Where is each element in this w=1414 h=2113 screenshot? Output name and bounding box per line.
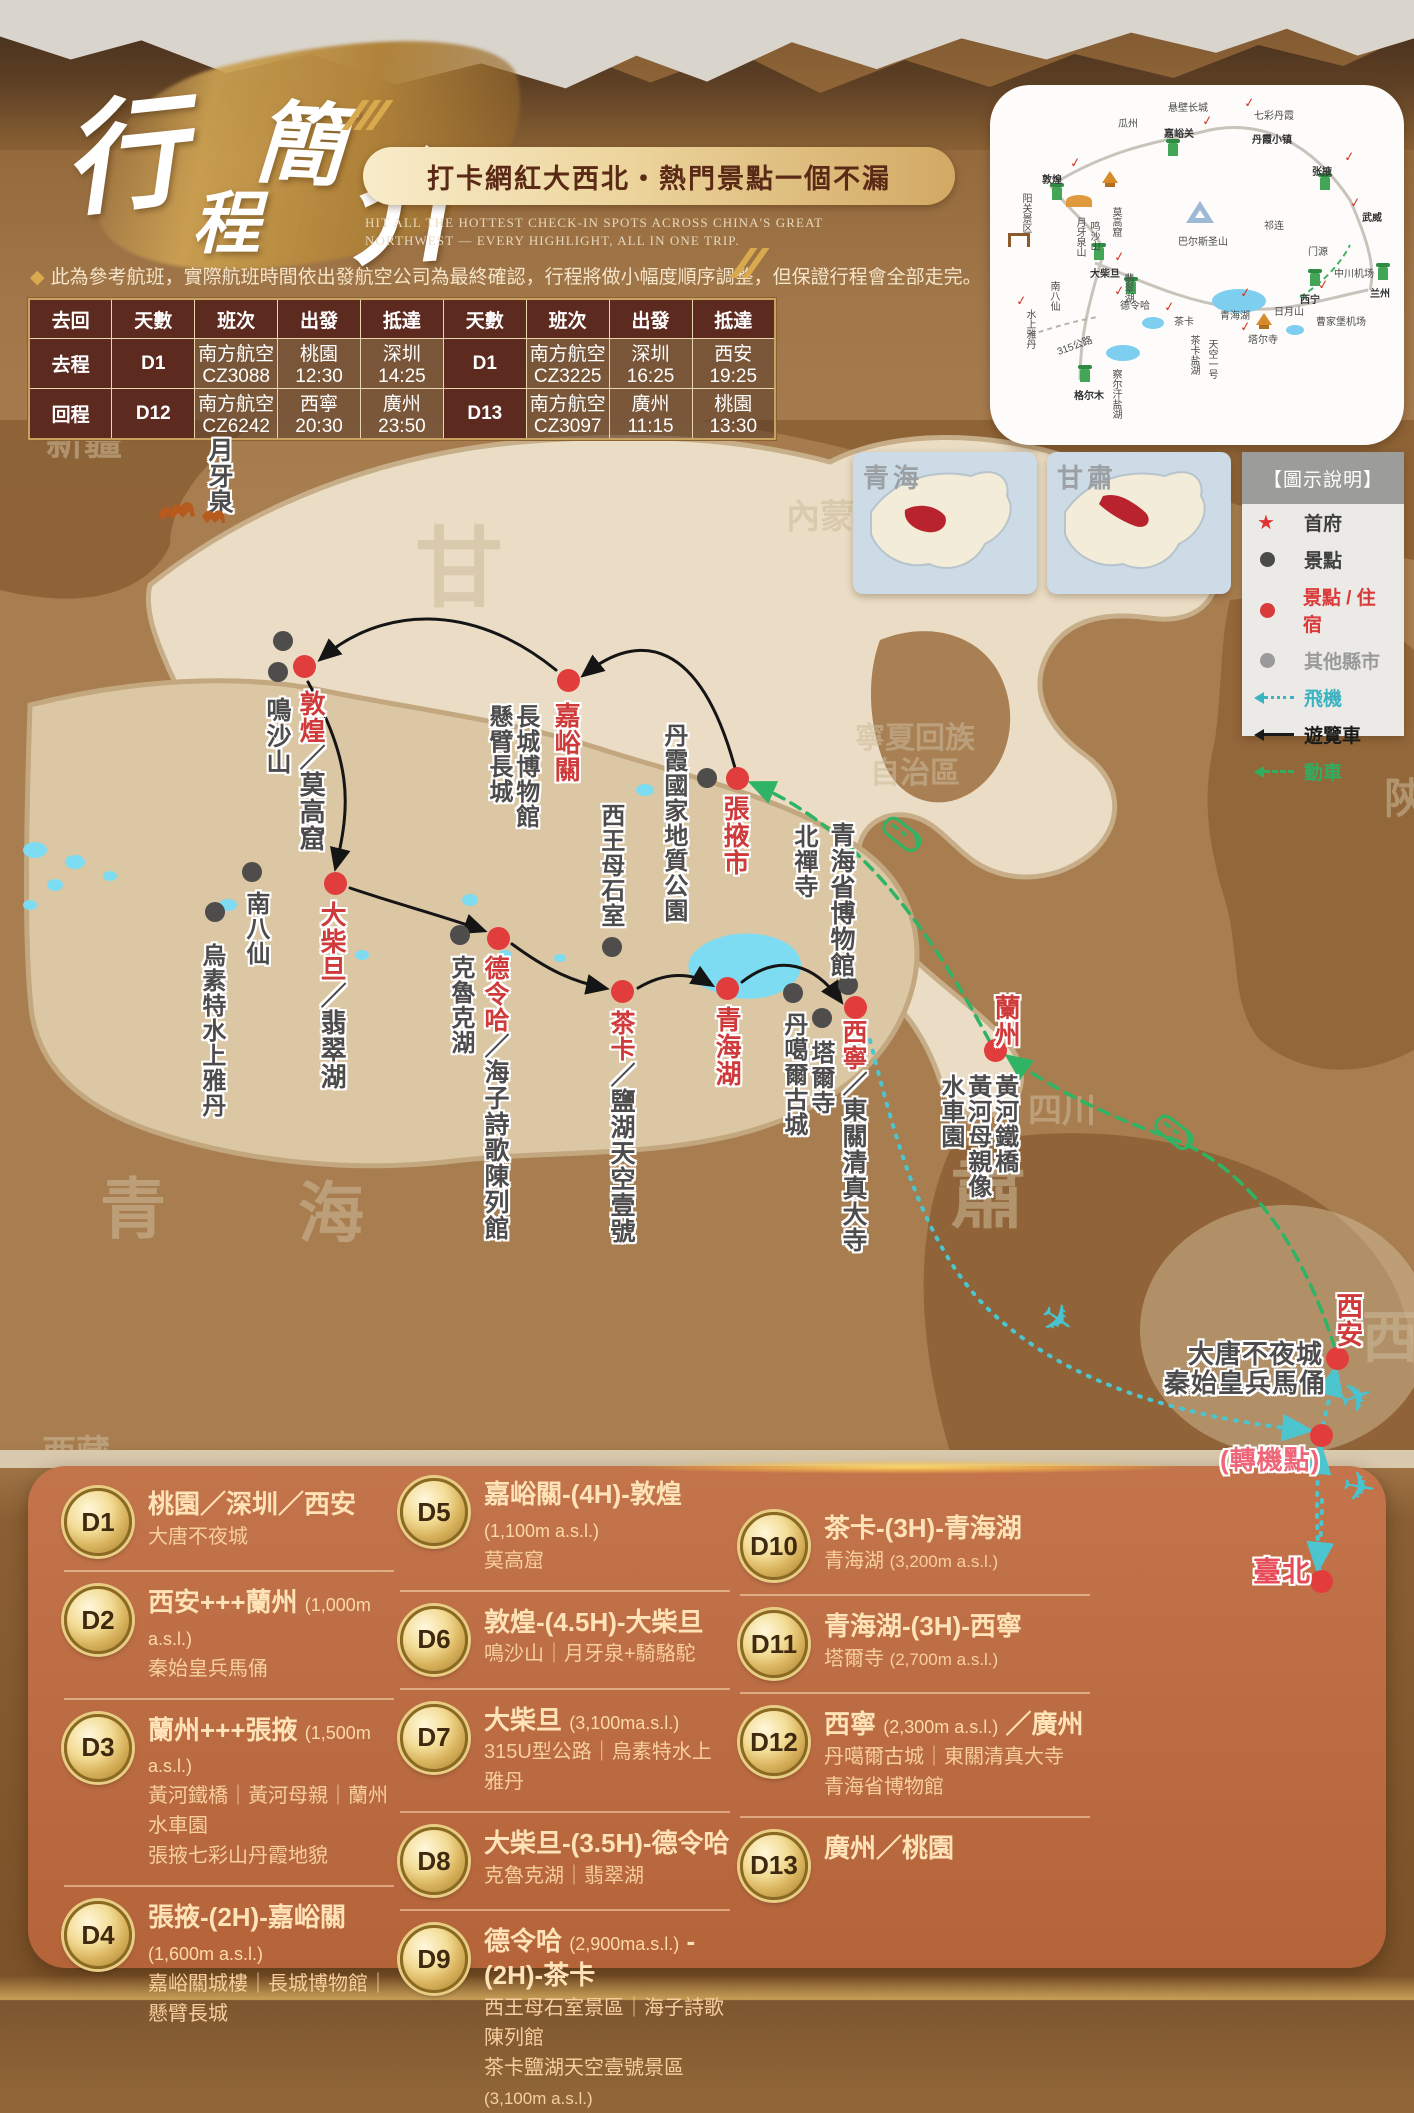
minimap-label: 武威: [1362, 209, 1382, 224]
map-label-part: ／海子詩歌陳列館: [481, 1033, 509, 1241]
itinerary-entry: D1桃園／深圳／西安大唐不夜城: [64, 1488, 394, 1556]
flight-cell: 南方航空CZ6242: [195, 389, 278, 440]
diamond-icon: ◆: [30, 267, 45, 288]
legend-item: ★首府: [1242, 504, 1404, 541]
entry-text: 德令哈 (2,900ma.s.l.) -(2H)-茶卡西王母石室景區｜海子詩歌陳…: [484, 1925, 730, 2113]
itinerary-entry: D3蘭州+++張掖 (1,500m a.s.l.)黃河鐵橋｜黃河母親｜蘭州水車園…: [64, 1714, 394, 1872]
entry-title-part: 張掖-(2H)-嘉峪關: [148, 1902, 346, 1932]
map-label-part: (轉機點): [1220, 1445, 1320, 1475]
map-stop-dot-red: [1310, 1570, 1333, 1593]
tower-icon: [1320, 177, 1330, 190]
entry-detail-part: 克魯克湖｜翡翠湖: [484, 1865, 644, 1887]
flight-cell: D13: [443, 389, 526, 440]
minimap-label: 塔尔寺: [1248, 331, 1278, 346]
minimap-label: 嘉峪关: [1164, 125, 1194, 140]
entry-title: 德令哈 (2,900ma.s.l.) -(2H)-茶卡: [484, 1925, 730, 1993]
itinerary-entry: D6敦煌-(4.5H)-大柴旦鳴沙山｜月牙泉+騎駱駝: [400, 1606, 730, 1674]
flight-cell: 南方航空CZ3088: [195, 339, 278, 389]
flight-cell: 廣州11:15: [609, 389, 692, 440]
map-stop-label: 青海省博物館: [827, 822, 855, 978]
map-watermark: 西: [1362, 1306, 1414, 1370]
map-legend: 【圖示說明】 ★首府景點景點 / 住宿其他縣市飛機遊覽車動車: [1242, 452, 1404, 736]
map-stop-dot-dark: [268, 662, 288, 682]
map-label-part: 塔爾寺: [807, 1040, 834, 1115]
entry-text: 敦煌-(4.5H)-大柴旦鳴沙山｜月牙泉+騎駱駝: [484, 1606, 704, 1670]
entry-divider: [400, 1811, 730, 1813]
entry-detail-part: (3,100m a.s.l.): [484, 2089, 593, 2108]
flight-cell: 西安19:25: [692, 339, 775, 389]
pagoda-icon: [1102, 171, 1118, 183]
map-stop-label: 大柴旦／翡翠湖: [317, 901, 346, 1090]
map-stop-dot-dark: [205, 902, 225, 922]
map-label-part: 秦始皇兵馬俑: [1164, 1368, 1326, 1398]
check-icon: ✓: [1317, 276, 1330, 293]
minimap-label: 丹霞小镇: [1252, 131, 1292, 146]
map-stop-dot-dark: [242, 862, 262, 882]
day-badge: D6: [400, 1606, 468, 1674]
legend-item-label: 其他縣市: [1304, 647, 1380, 674]
legend-item: 景點 / 住宿: [1242, 578, 1404, 642]
map-label-part: ／東關清真大寺: [839, 1071, 867, 1253]
entry-detail-line: 嘉峪關城樓｜長城博物館｜懸臂長城: [148, 1969, 394, 2029]
map-watermark: 甘: [415, 518, 503, 619]
pagoda-icon: [1256, 313, 1272, 325]
map-stop-dot-red: [557, 669, 580, 692]
check-icon: ✓: [1163, 298, 1176, 315]
minimap-label: 察尔汗盐湖: [1108, 369, 1123, 419]
minimap-label: 张掖: [1312, 163, 1332, 178]
minimap-label: 中川机场: [1334, 265, 1374, 280]
flight-col-header: 去回: [29, 299, 112, 339]
legend-item: 遊覽車: [1242, 716, 1404, 753]
check-icon: ✓: [1239, 318, 1252, 335]
map-label-part: 南八仙: [242, 891, 269, 966]
check-icon: ✓: [1113, 248, 1126, 265]
map-label-part: 德令哈: [481, 955, 509, 1033]
itinerary-entry: D4張掖-(2H)-嘉峪關 (1,600m a.s.l.)嘉峪關城樓｜長城博物館…: [64, 1901, 394, 2029]
map-stop-label: 烏素特水上雅丹: [197, 943, 224, 1118]
entry-detail-line: 青海省博物館: [824, 1772, 1084, 1802]
flight-col-header: 天數: [443, 299, 526, 339]
day-badge: D9: [400, 1925, 468, 1993]
entry-title: 廣州／桃園: [824, 1832, 954, 1866]
day-badge: D11: [740, 1610, 808, 1678]
arrow-icon: [1254, 729, 1294, 741]
legend-title: 【圖示說明】: [1242, 452, 1404, 504]
legend-item-label: 動車: [1304, 758, 1342, 785]
entry-text: 青海湖-(3H)-西寧塔爾寺 (2,700m a.s.l.): [824, 1610, 1022, 1674]
entry-divider: [64, 1570, 394, 1572]
flight-cell: 西寧20:30: [278, 389, 361, 440]
entry-title-part: (1,100m a.s.l.): [484, 1521, 599, 1541]
legend-item-label: 遊覽車: [1304, 721, 1361, 748]
map-label-part: 黃河鐵橋 黃河母親像 水車園: [937, 1074, 1018, 1199]
minimap-label: 日月山: [1274, 303, 1304, 318]
check-icon: ✓: [1015, 292, 1028, 309]
map-stop-label: 蘭州: [991, 994, 1020, 1048]
entry-title: 敦煌-(4.5H)-大柴旦: [484, 1606, 704, 1640]
flight-col-header: 天數: [112, 299, 195, 339]
entry-title: 桃園／深圳／西安: [148, 1488, 356, 1522]
map-stop-label: 嘉峪關: [551, 702, 580, 783]
entry-title: 青海湖-(3H)-西寧: [824, 1610, 1022, 1644]
entry-detail-part: 鳴沙山｜月牙泉+騎駱駝: [484, 1643, 696, 1665]
entry-detail-part: 嘉峪關城樓｜長城博物館｜懸臂長城: [148, 1973, 388, 2025]
map-stop-label: 張掖市: [720, 795, 749, 876]
map-label-part: 大唐不夜城: [1188, 1339, 1323, 1369]
tower-icon: [1052, 187, 1062, 200]
lake-icon: [1142, 317, 1164, 329]
map-watermark: 寧夏回族 自治區: [855, 722, 975, 791]
entry-detail-part: 莫高窟: [484, 1550, 544, 1572]
map-stop-dot-red: [293, 655, 316, 678]
entry-title-part: (3,100ma.s.l.): [569, 1713, 679, 1733]
map-stop-label: (轉機點): [1220, 1446, 1320, 1475]
entry-title-part: 廣州／桃園: [824, 1833, 954, 1863]
flight-table: 去回天數班次出發抵達天數班次出發抵達 去程D1南方航空CZ3088桃園12:30…: [28, 298, 776, 440]
map-stop-dot-red: [726, 767, 749, 790]
check-icon: ✓: [1239, 284, 1252, 301]
check-icon: ✓: [1349, 194, 1362, 211]
illustrated-route-minimap: 敦煌瓜州悬壁长城嘉峪关七彩丹霞丹霞小镇张掖武威兰州中川机场西宁曹家堡机场塔尔寺青…: [990, 85, 1404, 445]
entry-text: 西寧 (2,300m a.s.l.) ／廣州丹噶爾古城｜東關清真大寺青海省博物館: [824, 1708, 1084, 1802]
flight-col-header: 抵達: [692, 299, 775, 339]
itinerary-entry: D12西寧 (2,300m a.s.l.) ／廣州丹噶爾古城｜東關清真大寺青海省…: [740, 1708, 1090, 1802]
minimap-label: 门源: [1308, 243, 1328, 258]
gold-slashes-icon: [740, 248, 764, 283]
map-stop-label: 黃河鐵橋 黃河母親像 水車園: [936, 1074, 1017, 1199]
flight-cell: 南方航空CZ3225: [526, 339, 609, 389]
entry-detail-line: 塔爾寺 (2,700m a.s.l.): [824, 1644, 1022, 1674]
map-stop-label: 長城博物館 懸臂長城: [484, 704, 538, 829]
legend-item: 其他縣市: [1242, 642, 1404, 679]
flight-cell: 桃園12:30: [278, 339, 361, 389]
entry-divider: [740, 1692, 1090, 1694]
entry-divider: [64, 1885, 394, 1887]
entry-detail-part: 青海湖: [824, 1550, 890, 1572]
map-stop-dot-dark: [450, 925, 470, 945]
minimap-label: 月牙泉山: [1072, 217, 1087, 257]
map-stop-dot-red: [324, 872, 347, 895]
minimap-label: 兰州: [1370, 285, 1390, 300]
map-stop-label: 西寧／東關清真大寺: [839, 1019, 867, 1253]
tower-icon: [1378, 267, 1388, 280]
map-stop-label: 丹噶爾古城: [779, 1012, 806, 1137]
itinerary-entry: D10茶卡-(3H)-青海湖青海湖 (3,200m a.s.l.): [740, 1512, 1090, 1580]
entry-detail-part: 塔爾寺: [824, 1648, 890, 1670]
entry-detail-line: 丹噶爾古城｜東關清真大寺: [824, 1742, 1084, 1772]
dot-icon: [1254, 552, 1294, 567]
map-label-part: 西安: [1332, 1292, 1362, 1348]
entry-detail-line: 克魯克湖｜翡翠湖: [484, 1861, 730, 1891]
map-stop-label: 西王母石室: [596, 803, 623, 928]
entry-title: 嘉峪關-(4H)-敦煌 (1,100m a.s.l.): [484, 1478, 730, 1546]
entry-title-part: ／廣州: [998, 1709, 1083, 1739]
entry-title: 大柴旦 (3,100ma.s.l.): [484, 1704, 730, 1738]
flight-cell: 廣州23:50: [361, 389, 444, 440]
entry-title-part: 敦煌-(4.5H)-大柴旦: [484, 1607, 704, 1637]
minimap-label: 瓜州: [1118, 115, 1138, 130]
minimap-label: 阳关景区: [1018, 193, 1033, 233]
lake-icon: [1286, 325, 1304, 335]
day-badge: D7: [400, 1704, 468, 1772]
map-label-part: 烏素特水上雅丹: [198, 943, 225, 1118]
check-icon: ✓: [1113, 282, 1126, 299]
entry-text: 張掖-(2H)-嘉峪關 (1,600m a.s.l.)嘉峪關城樓｜長城博物館｜懸…: [148, 1901, 394, 2029]
dot-icon: [1254, 653, 1294, 668]
itinerary-entry: D7大柴旦 (3,100ma.s.l.)315U型公路｜烏素特水上雅丹: [400, 1704, 730, 1798]
camel-caravan-icon: [150, 485, 235, 532]
map-stop-label: 西安: [1332, 1292, 1362, 1348]
day-badge: D13: [740, 1832, 808, 1900]
minimap-label: 天空一号: [1204, 339, 1219, 379]
map-watermark: 海: [298, 1176, 364, 1252]
star-icon: ★: [1254, 510, 1294, 535]
map-stop-label: 鳴沙山: [263, 697, 291, 775]
map-label-part: 克魯克湖: [447, 955, 474, 1055]
entry-text: 大柴旦-(3.5H)-德令哈克魯克湖｜翡翠湖: [484, 1827, 730, 1891]
locator-map-qinghai: 青海: [853, 452, 1037, 594]
day-badge: D3: [64, 1714, 132, 1782]
entry-detail-line: 青海湖 (3,200m a.s.l.): [824, 1546, 1022, 1576]
arrow-icon: [1254, 692, 1294, 704]
entry-title: 張掖-(2H)-嘉峪關 (1,600m a.s.l.): [148, 1901, 394, 1969]
map-stop-label: 塔爾寺: [806, 1040, 833, 1115]
map-watermark: 青: [100, 1172, 166, 1248]
minimap-label: 茶卡: [1174, 313, 1194, 328]
plane-icon: ✈: [1339, 1465, 1379, 1510]
entry-detail-part: 青海省博物館: [824, 1776, 944, 1798]
entry-detail-part: 茶卡鹽湖天空壹號景區: [484, 2057, 684, 2079]
entry-title: 西寧 (2,300m a.s.l.) ／廣州: [824, 1708, 1084, 1742]
entry-title-part: 青海湖-(3H)-西寧: [824, 1611, 1022, 1641]
tagline-english: HIT ALL THE HOTTEST CHECK-IN SPOTS ACROS…: [365, 214, 823, 249]
check-icon: ✓: [1201, 112, 1214, 129]
day-badge: D1: [64, 1488, 132, 1556]
legend-item: 動車: [1242, 753, 1404, 790]
minimap-label: 茶卡盐湖: [1186, 335, 1201, 375]
minimap-label: 七彩丹霞: [1254, 107, 1294, 122]
check-icon: ✓: [1069, 154, 1082, 171]
flight-col-header: 班次: [526, 299, 609, 339]
map-label-part: 西王母石室: [597, 803, 624, 928]
entry-text: 蘭州+++張掖 (1,500m a.s.l.)黃河鐵橋｜黃河母親｜蘭州水車園張掖…: [148, 1714, 394, 1872]
mtn-icon: [1186, 201, 1214, 223]
map-stop-dot-dark: [812, 1008, 832, 1028]
entry-text: 茶卡-(3H)-青海湖青海湖 (3,200m a.s.l.): [824, 1512, 1022, 1576]
map-stop-dot-red: [1326, 1347, 1349, 1370]
day-badge: D12: [740, 1708, 808, 1776]
minimap-label: 南八仙: [1046, 281, 1061, 311]
itinerary-entry: D5嘉峪關-(4H)-敦煌 (1,100m a.s.l.)莫高窟: [400, 1478, 730, 1576]
map-label-part: ／鹽湖天空壹號: [607, 1062, 635, 1244]
map-stop-label: 青海湖: [712, 1006, 741, 1087]
entry-detail-line: 大唐不夜城: [148, 1522, 356, 1552]
entry-divider: [400, 1909, 730, 1911]
map-stop-label: 敦煌／莫高窟: [296, 690, 325, 852]
entry-title-part: 西寧: [824, 1709, 883, 1739]
map-stop-label: 秦始皇兵馬俑: [1164, 1369, 1326, 1398]
entry-detail-part: (3,200m a.s.l.): [890, 1552, 999, 1571]
entry-divider: [740, 1594, 1090, 1596]
map-watermark: 四川: [1028, 1092, 1096, 1131]
entry-title-part: 嘉峪關-(4H)-敦煌: [484, 1479, 682, 1509]
flight-cell: D1: [112, 339, 195, 389]
entry-detail-part: 秦始皇兵馬俑: [148, 1658, 268, 1680]
entry-detail-line: 莫高窟: [484, 1546, 730, 1576]
map-label-part: 敦煌: [296, 690, 326, 744]
minimap-label: 莫高窟: [1108, 207, 1123, 237]
minimap-label: 祁连: [1264, 217, 1284, 232]
entry-text: 大柴旦 (3,100ma.s.l.)315U型公路｜烏素特水上雅丹: [484, 1704, 730, 1798]
map-stop-label: 北禪寺: [789, 824, 816, 899]
itinerary-entry: D8大柴旦-(3.5H)-德令哈克魯克湖｜翡翠湖: [400, 1827, 730, 1895]
map-stop-dot-red: [611, 980, 634, 1003]
flight-cell: 深圳14:25: [361, 339, 444, 389]
minimap-label: 水上雅丹: [1022, 309, 1037, 349]
itinerary-card: D1桃園／深圳／西安大唐不夜城D2西安+++蘭州 (1,000m a.s.l.)…: [28, 1466, 1386, 1968]
tagline-badge: 打卡網紅大西北・熱門景點一個不漏: [363, 147, 955, 205]
locator-label: 青海: [863, 458, 923, 495]
flight-cell: 回程: [29, 389, 112, 440]
map-stop-dot-red: [487, 927, 510, 950]
map-label-part: 丹霞國家地質公園: [660, 723, 687, 923]
flight-cell: D1: [443, 339, 526, 389]
day-badge: D5: [400, 1478, 468, 1546]
flight-cell: 南方航空CZ3097: [526, 389, 609, 440]
dune-icon: [1066, 195, 1092, 207]
entry-detail-part: (2,700m a.s.l.): [890, 1650, 999, 1669]
map-label-part: ／翡翠湖: [317, 982, 347, 1090]
legend-item-label: 景點: [1304, 546, 1342, 573]
flight-cell: D12: [112, 389, 195, 440]
lake-icon: [1106, 345, 1140, 361]
map-label-part: 丹噶爾古城: [780, 1012, 807, 1137]
flight-cell: 深圳16:25: [609, 339, 692, 389]
flight-col-header: 出發: [609, 299, 692, 339]
minimap-label: 鸣沙山: [1086, 221, 1101, 251]
entry-detail-part: 黃河鐵橋｜黃河母親｜蘭州水車園: [148, 1785, 388, 1837]
map-stop-dot-red: [716, 977, 739, 1000]
entry-detail-line: 西王母石室景區｜海子詩歌陳列館: [484, 1993, 730, 2053]
entry-title-part: 蘭州+++張掖: [148, 1715, 305, 1745]
arrow-icon: [1254, 766, 1294, 778]
minimap-label: 悬壁长城: [1168, 99, 1208, 114]
entry-title-part: (1,600m a.s.l.): [148, 1944, 263, 1964]
page-title-char: 簡: [252, 70, 349, 205]
day-badge: D2: [64, 1586, 132, 1654]
map-label-part: 大柴旦: [317, 901, 347, 982]
tower-icon: [1168, 143, 1178, 156]
entry-text: 西安+++蘭州 (1,000m a.s.l.)秦始皇兵馬俑: [148, 1586, 394, 1684]
map-stop-dot-dark: [273, 631, 293, 651]
map-stop-label: 南八仙: [241, 891, 268, 966]
entry-title-part: 茶卡-(3H)-青海湖: [824, 1513, 1022, 1543]
map-stop-label: 茶卡／鹽湖天空壹號: [607, 1010, 635, 1244]
minimap-label: 格尔木: [1074, 387, 1104, 402]
locator-map-gansu: 甘肅: [1047, 452, 1231, 594]
entry-detail-part: 張掖七彩山丹霞地貌: [148, 1845, 328, 1867]
day-badge: D10: [740, 1512, 808, 1580]
map-label-part: 臺北: [1253, 1556, 1311, 1587]
check-icon: ✓: [1243, 94, 1256, 111]
entry-detail-part: 丹噶爾古城｜東關清真大寺: [824, 1746, 1064, 1768]
page-title-char: 程: [192, 168, 260, 267]
map-label-part: ／莫高窟: [296, 744, 326, 852]
map-stop-label: 克魯克湖: [446, 955, 473, 1055]
entry-title: 蘭州+++張掖 (1,500m a.s.l.): [148, 1714, 394, 1782]
minimap-label: 大柴旦: [1090, 265, 1120, 280]
entry-divider: [400, 1590, 730, 1592]
entry-title: 大柴旦-(3.5H)-德令哈: [484, 1827, 730, 1861]
entry-detail-part: 315U型公路｜烏素特水上雅丹: [484, 1741, 712, 1793]
entry-detail-line: 鳴沙山｜月牙泉+騎駱駝: [484, 1639, 704, 1669]
flight-cell: 桃園13:30: [692, 389, 775, 440]
map-stop-dot-dark: [838, 975, 858, 995]
itinerary-entry: D9德令哈 (2,900ma.s.l.) -(2H)-茶卡西王母石室景區｜海子詩…: [400, 1925, 730, 2113]
entry-detail-part: 大唐不夜城: [148, 1526, 248, 1548]
map-stop-label: 德令哈／海子詩歌陳列館: [481, 955, 509, 1241]
entry-title-part: (2,900ma.s.l.): [569, 1934, 679, 1954]
itinerary-entry: D11青海湖-(3H)-西寧塔爾寺 (2,700m a.s.l.): [740, 1610, 1090, 1678]
flight-col-header: 抵達: [361, 299, 444, 339]
map-label-part: 北禪寺: [790, 824, 817, 899]
day-badge: D4: [64, 1901, 132, 1969]
map-stop-label: 大唐不夜城: [1188, 1340, 1323, 1369]
entry-divider: [64, 1698, 394, 1700]
gold-slashes-icon: [352, 100, 388, 135]
entry-detail-line: 315U型公路｜烏素特水上雅丹: [484, 1737, 730, 1797]
minimap-label: 巴尔斯圣山: [1178, 233, 1228, 248]
map-label-part: 鳴沙山: [263, 697, 291, 775]
map-stop-label: 丹霞國家地質公園: [659, 723, 686, 923]
map-stop-dot-dark: [697, 768, 717, 788]
map-stop-dot-dark: [783, 983, 803, 1003]
legend-item-label: 景點 / 住宿: [1303, 583, 1392, 637]
gold-flare: [628, 1460, 1188, 1474]
entry-detail-part: 西王母石室景區｜海子詩歌陳列館: [484, 1997, 724, 2049]
flight-note: ◆此為參考航班，實際航班時間依出發航空公司為最終確認，行程將做小幅度順序調整，但…: [30, 262, 982, 289]
dot-icon: [1254, 603, 1293, 618]
legend-item-label: 首府: [1304, 509, 1342, 536]
map-stop-dot-red: [1310, 1424, 1333, 1447]
tower-icon: [1080, 369, 1090, 382]
minimap-label: 曹家堡机场: [1316, 313, 1366, 328]
entry-detail-line: 茶卡鹽湖天空壹號景區 (3,100m a.s.l.): [484, 2053, 730, 2113]
entry-text: 廣州／桃園: [824, 1832, 954, 1866]
map-stop-dot-red: [844, 996, 867, 1019]
gate-icon: [1008, 233, 1030, 247]
map-label-part: 西寧: [839, 1019, 867, 1071]
itinerary-entry: D13廣州／桃園: [740, 1832, 1090, 1900]
entry-divider: [740, 1816, 1090, 1818]
itinerary-entry: D2西安+++蘭州 (1,000m a.s.l.)秦始皇兵馬俑: [64, 1586, 394, 1684]
entry-detail-line: 黃河鐵橋｜黃河母親｜蘭州水車園: [148, 1781, 394, 1841]
flight-col-header: 班次: [195, 299, 278, 339]
map-label-part: 青海湖: [712, 1006, 742, 1087]
entry-text: 嘉峪關-(4H)-敦煌 (1,100m a.s.l.)莫高窟: [484, 1478, 730, 1576]
flight-col-header: 出發: [278, 299, 361, 339]
entry-title-part: 西安+++蘭州: [148, 1587, 305, 1617]
map-label-part: 茶卡: [607, 1010, 635, 1062]
entry-title-part: 大柴旦-(3.5H)-德令哈: [484, 1828, 730, 1858]
entry-detail-line: 張掖七彩山丹霞地貌: [148, 1841, 394, 1871]
flight-cell: 去程: [29, 339, 112, 389]
flight-table-row: 去程D1南方航空CZ3088桃園12:30深圳14:25D1南方航空CZ3225…: [29, 339, 775, 389]
day-badge: D8: [400, 1827, 468, 1895]
minimap-label: 敦煌: [1042, 171, 1062, 186]
map-label-part: 蘭州: [991, 994, 1021, 1048]
